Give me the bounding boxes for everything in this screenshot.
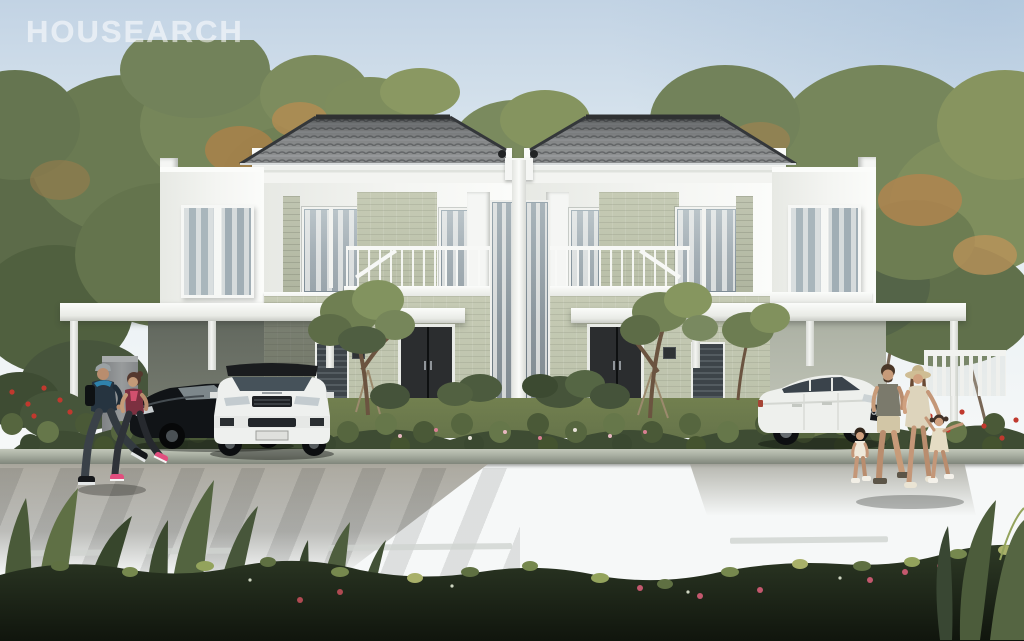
scene-architectural-rendering: HOUSEARCH: [0, 0, 1024, 641]
left-roof: [240, 117, 506, 164]
watermark-text: HOUSEARCH: [26, 14, 244, 50]
right-window-mullion: [702, 209, 706, 288]
right-roof: [530, 117, 796, 164]
young-tree-right: [620, 282, 718, 418]
foreground-hedge: [0, 440, 1024, 641]
left-window-mullion: [329, 209, 333, 288]
tall-leaves-right: [936, 500, 1024, 640]
foundation-bushes: [370, 370, 630, 409]
